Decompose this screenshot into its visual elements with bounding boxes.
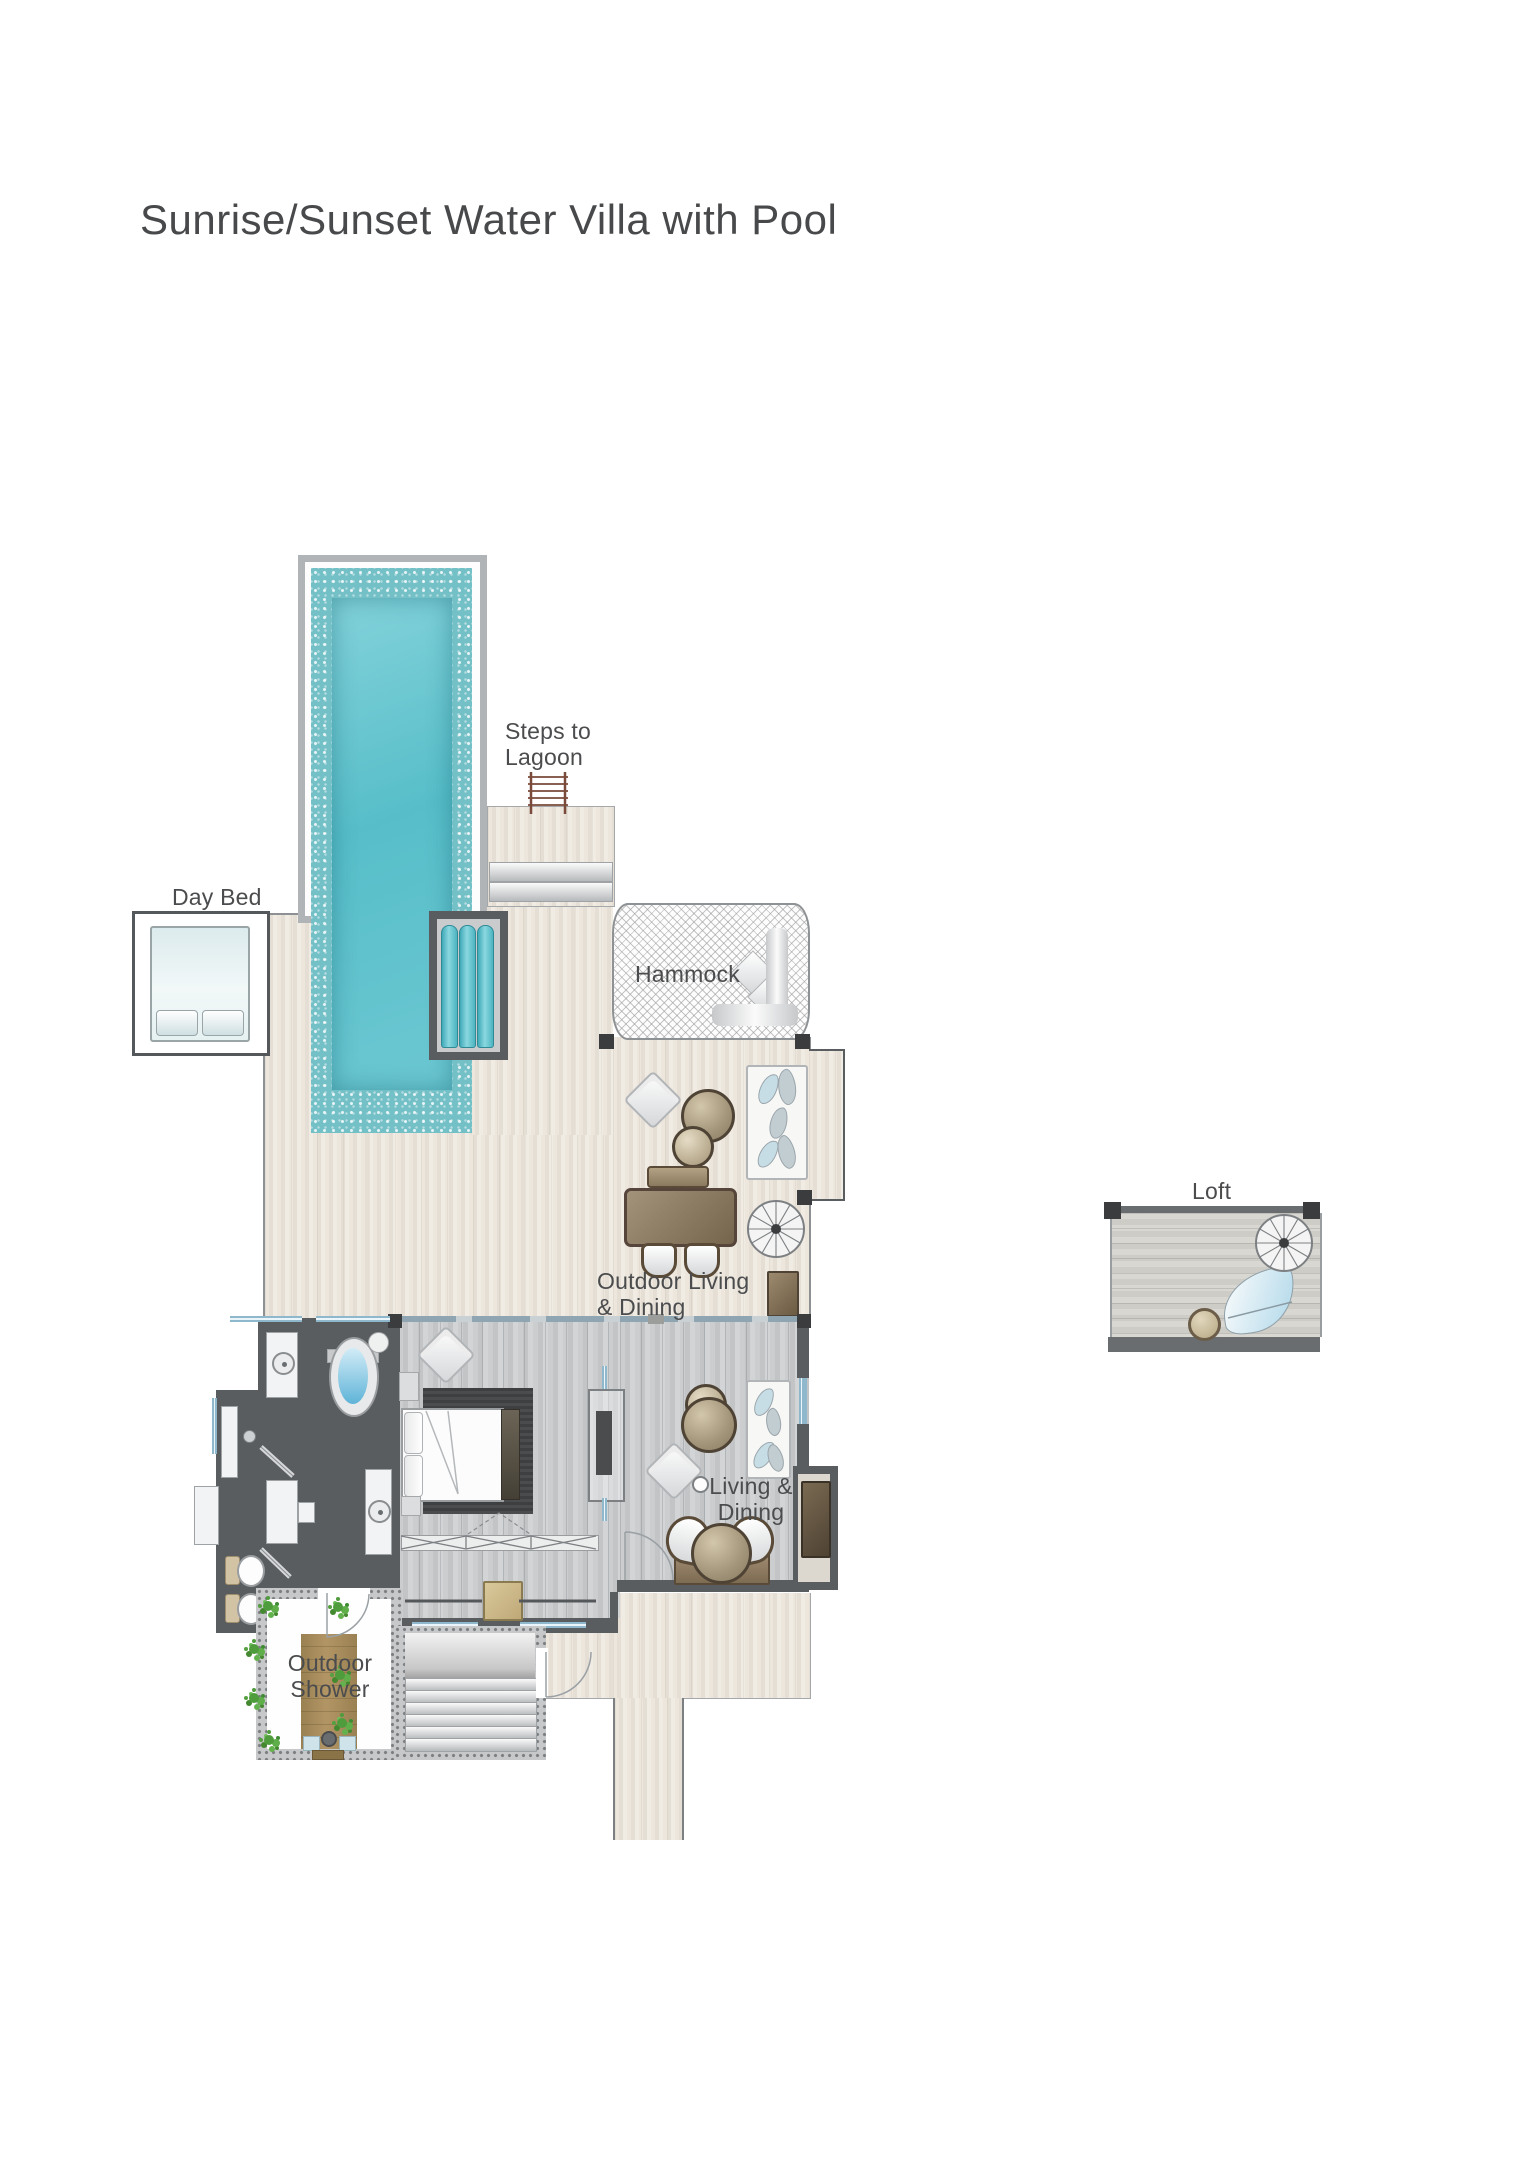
label-living-dining: Living & Dining bbox=[705, 1473, 797, 1526]
deck-by-entry-steps bbox=[545, 1633, 613, 1699]
shower-door-gap bbox=[318, 1588, 370, 1601]
entry-landing bbox=[405, 1633, 535, 1678]
bathroom-north-window bbox=[230, 1316, 302, 1322]
indoor-dining-table bbox=[691, 1523, 752, 1584]
outdoor-lounge-chair bbox=[623, 1070, 681, 1128]
platform-step bbox=[489, 862, 613, 882]
walkway-pier bbox=[613, 1698, 684, 1840]
nightstand bbox=[401, 1496, 421, 1516]
label-loft: Loft bbox=[1192, 1178, 1231, 1204]
loft-north-wall bbox=[1108, 1206, 1320, 1213]
platform-step bbox=[489, 882, 613, 902]
partition-glass bbox=[602, 1498, 607, 1521]
bed-pillow bbox=[404, 1412, 423, 1454]
deck-sofa-alcove bbox=[809, 1049, 845, 1201]
corner-post bbox=[388, 1314, 402, 1328]
loft-post bbox=[1303, 1202, 1320, 1219]
shower-mat bbox=[339, 1736, 356, 1751]
bath-stool bbox=[368, 1332, 389, 1353]
hammock-post bbox=[599, 1034, 614, 1049]
day-bed-pillow bbox=[156, 1010, 198, 1036]
plant bbox=[249, 1644, 259, 1654]
loft-pouf bbox=[1188, 1308, 1221, 1341]
hammock-lounger-back bbox=[766, 928, 788, 1013]
entry-door-gap bbox=[536, 1648, 548, 1698]
shower-mat bbox=[303, 1736, 320, 1751]
corner-post bbox=[797, 1314, 811, 1328]
living-east-wall bbox=[797, 1424, 809, 1470]
toilet-bowl bbox=[237, 1555, 265, 1587]
label-steps-to-lagoon: Steps to Lagoon bbox=[505, 718, 591, 771]
hammock-post bbox=[795, 1034, 810, 1049]
dining-bench bbox=[647, 1166, 709, 1188]
deck-left-strip bbox=[263, 913, 313, 1137]
plant bbox=[249, 1693, 259, 1703]
pool-step bbox=[459, 925, 476, 1048]
bathtub-water bbox=[338, 1348, 368, 1404]
alcove-post bbox=[797, 1190, 812, 1205]
deck-south bbox=[613, 1593, 811, 1699]
outdoor-sofa bbox=[746, 1065, 808, 1180]
entry-step bbox=[405, 1738, 537, 1752]
hammock-lounger-seat bbox=[712, 1004, 798, 1026]
loft-south-wall bbox=[1108, 1337, 1320, 1352]
living-east-window bbox=[799, 1378, 807, 1424]
outdoor-round-pouf bbox=[672, 1126, 714, 1168]
bathroom-north-window bbox=[316, 1316, 390, 1322]
label-hammock: Hammock bbox=[635, 961, 740, 987]
living-east-wall bbox=[797, 1322, 809, 1378]
label-outdoor-living-dining: Outdoor Living & Dining bbox=[597, 1268, 749, 1321]
bed-pillow bbox=[404, 1455, 423, 1497]
bathroom-sink-2 bbox=[368, 1500, 391, 1523]
outer-vanity bbox=[194, 1486, 219, 1545]
bathroom-west-window bbox=[212, 1398, 217, 1454]
outdoor-side-table bbox=[767, 1271, 799, 1317]
bathroom-counter-small bbox=[298, 1502, 315, 1523]
outdoor-shower-bench bbox=[312, 1750, 344, 1760]
plant bbox=[263, 1601, 273, 1611]
loft-post bbox=[1104, 1202, 1121, 1219]
bathroom-counter bbox=[266, 1480, 298, 1544]
bedroom-chair bbox=[416, 1325, 474, 1383]
deck-below-pool bbox=[263, 1133, 615, 1323]
bedroom-bench bbox=[483, 1581, 523, 1621]
label-outdoor-shower: Outdoor Shower bbox=[284, 1650, 376, 1703]
bed-foot-dresser bbox=[501, 1409, 520, 1500]
pool-step bbox=[477, 925, 494, 1048]
living-sofa bbox=[746, 1380, 791, 1479]
page-title: Sunrise/Sunset Water Villa with Pool bbox=[140, 196, 837, 244]
wardrobe bbox=[401, 1535, 599, 1551]
plant bbox=[264, 1735, 274, 1745]
console-cabinet bbox=[801, 1481, 831, 1558]
label-day-bed: Day Bed bbox=[172, 884, 262, 910]
partition-glass bbox=[602, 1366, 607, 1389]
tv-screen bbox=[596, 1411, 612, 1475]
plant bbox=[337, 1718, 347, 1728]
pool-step bbox=[441, 925, 458, 1048]
outdoor-dining-table bbox=[624, 1188, 737, 1247]
outdoor-shower-head bbox=[321, 1731, 337, 1747]
shower-head bbox=[243, 1430, 256, 1443]
bathroom-sink bbox=[272, 1352, 295, 1375]
plant bbox=[333, 1602, 343, 1612]
nightstand bbox=[399, 1372, 419, 1401]
floor-plan: Sunrise/Sunset Water Villa with Pool Day… bbox=[0, 0, 1530, 2162]
day-bed-pillow bbox=[202, 1010, 244, 1036]
shower-screen bbox=[221, 1406, 238, 1478]
